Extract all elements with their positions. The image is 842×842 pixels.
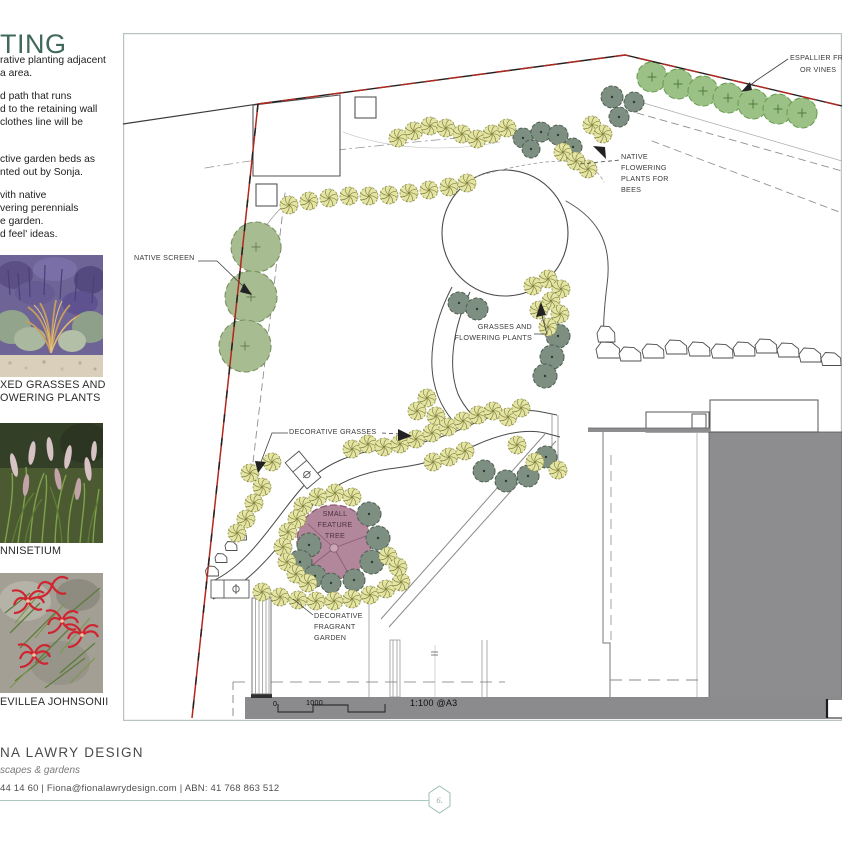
native-screen-tree-symbol [231, 222, 281, 272]
grass-symbol [359, 435, 377, 453]
grass-symbol [361, 586, 379, 604]
shrub-symbol [624, 92, 644, 112]
grass-symbol [380, 186, 398, 204]
grass-symbol [498, 119, 516, 137]
espalier-tree-symbol [637, 62, 667, 92]
grass-symbol [389, 129, 407, 147]
grass-symbol [320, 189, 338, 207]
grass-symbol [343, 488, 361, 506]
grass-symbol [343, 590, 361, 608]
retaining-wall [245, 694, 842, 719]
shrub-symbol [466, 298, 488, 320]
grass-symbol [309, 488, 327, 506]
grass-symbol [375, 438, 393, 456]
espalier-tree-symbol [713, 83, 743, 113]
shrub-symbol [601, 86, 623, 108]
grass-symbol [549, 461, 567, 479]
grass-symbol [421, 117, 439, 135]
grass-symbol [307, 592, 325, 610]
grass-symbol [400, 184, 418, 202]
grass-symbol [458, 174, 476, 192]
grass-symbol [456, 442, 474, 460]
planting-plan-drawing [0, 0, 842, 842]
grass-symbol [424, 453, 442, 471]
grass-symbol [271, 588, 289, 606]
espalier-tree-symbol [787, 98, 817, 128]
shrub-symbol [495, 470, 517, 492]
native-screen-tree-symbol [225, 271, 277, 323]
grass-symbol [241, 464, 259, 482]
shrub-symbol [357, 502, 381, 526]
shrub-symbol [522, 140, 540, 158]
small-structure-top [355, 97, 376, 118]
small-structure-mid [256, 184, 277, 206]
grass-symbol [343, 440, 361, 458]
shed-outline [253, 95, 340, 176]
grass-symbol [389, 558, 407, 576]
grass-symbol [437, 119, 455, 137]
shrub-symbol [609, 107, 629, 127]
grass-symbol [245, 494, 263, 512]
grass-symbol [440, 448, 458, 466]
native-screen-tree-symbol [219, 320, 271, 372]
grass-symbol [253, 478, 271, 496]
grass-symbol [408, 402, 426, 420]
grass-symbol [326, 484, 344, 502]
grass-symbol [539, 318, 557, 336]
grass-symbol [508, 436, 526, 454]
design-document-page: TING rative planting adjacent a area. d … [0, 0, 842, 842]
shrub-symbol [533, 364, 557, 388]
garden-steps [252, 598, 271, 694]
house-footprint [709, 432, 842, 698]
grass-symbol [423, 424, 441, 442]
grass-symbol [228, 524, 246, 542]
grass-symbol [420, 181, 438, 199]
grass-symbol [289, 591, 307, 609]
grass-symbol [526, 453, 544, 471]
grass-symbol [594, 125, 612, 143]
grass-symbol [440, 178, 458, 196]
grass-symbol [253, 583, 271, 601]
grass-symbol [360, 187, 378, 205]
grass-symbol [299, 574, 317, 592]
shrub-symbol [473, 460, 495, 482]
grass-symbol [325, 592, 343, 610]
grass-symbol [512, 399, 530, 417]
grass-symbol [280, 196, 298, 214]
grass-symbol [405, 122, 423, 140]
grass-symbol [340, 187, 358, 205]
grass-symbol [407, 430, 425, 448]
shrub-symbol [343, 569, 365, 591]
shrub-symbol [366, 526, 390, 550]
shrub-symbol [321, 573, 341, 593]
grass-symbol [300, 192, 318, 210]
shrub-symbol [531, 122, 551, 142]
